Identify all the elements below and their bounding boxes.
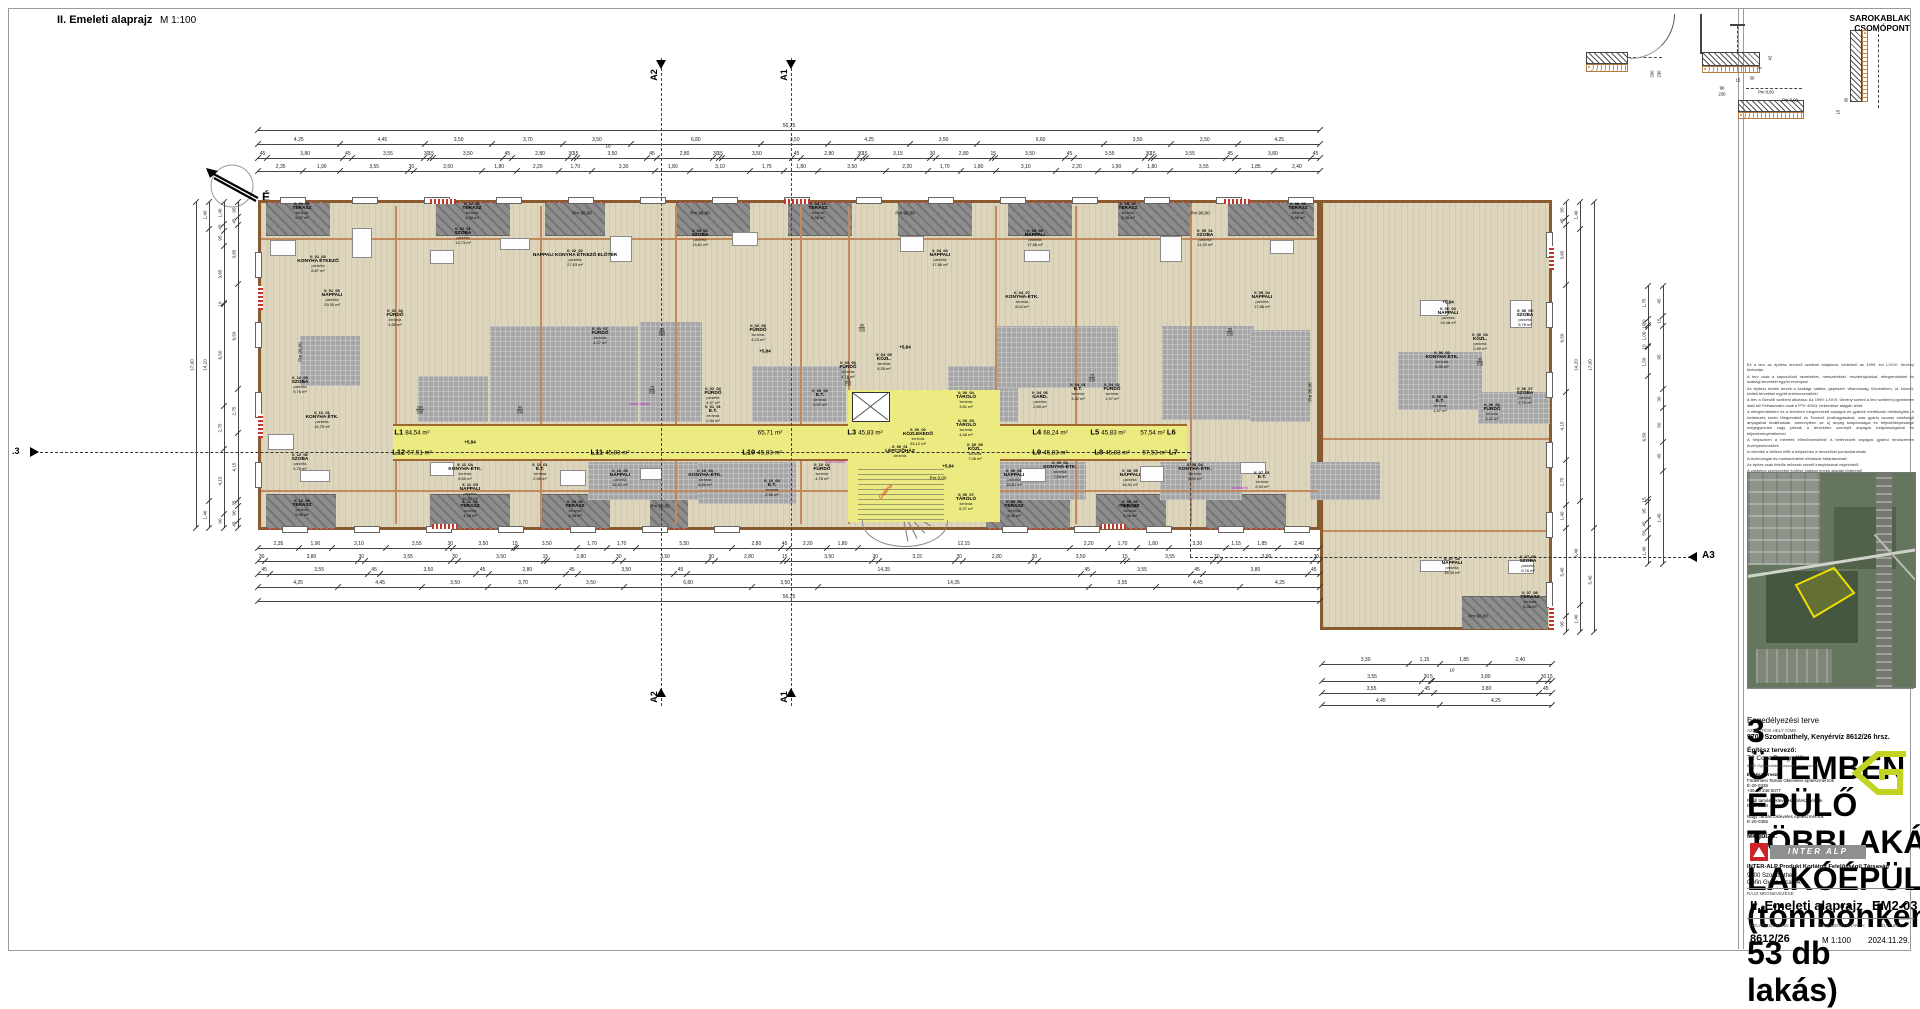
- room-label: II_12_06SZOBAparketta9,76 m²: [292, 453, 309, 471]
- dim-line: [1594, 202, 1595, 632]
- dim-line: [1580, 202, 1581, 632]
- dim-value: 1,80: [668, 164, 678, 170]
- dim-value: 1,40: [1560, 512, 1565, 521]
- dim-value: 1,70: [940, 164, 950, 170]
- dim-value: 4,45: [377, 137, 387, 143]
- dim-value: 3,65: [218, 270, 223, 279]
- dim-value: 2,40: [1292, 164, 1302, 170]
- dim-value: 30: [956, 554, 962, 560]
- door-dimension: 75210: [845, 377, 851, 386]
- door-dimension: 90210: [859, 323, 865, 332]
- dim-value: 17,00: [1588, 359, 1593, 371]
- dim-value: 1,70: [570, 164, 580, 170]
- note-line: A rétegrendekben és a terveken megneveze…: [1747, 409, 1914, 436]
- dim-value: 2,20: [1072, 164, 1082, 170]
- level-mark: Pm 90,00: [690, 211, 709, 216]
- room-label: II_11_04KONYHA-ÉTK.kerámia5,50 m²: [448, 463, 481, 481]
- dim-value: 3,50: [443, 164, 453, 170]
- furniture: [1140, 466, 1164, 482]
- apartment-unit-label: L5 45,83 m²: [1090, 428, 1125, 437]
- dim-value: 1,85: [1257, 541, 1267, 547]
- party-wall: [800, 206, 802, 524]
- stair-treads: [858, 466, 944, 520]
- dim-value: 3,55: [1199, 164, 1209, 170]
- client-street: Géfin Gyula utca 24.: [1747, 880, 1914, 886]
- dim-value: 45: [1313, 151, 1319, 157]
- furniture: [300, 470, 330, 482]
- dim-value: 1,40: [1574, 211, 1579, 220]
- dim-value: 2,35: [274, 541, 284, 547]
- room-label: II_02_01SZOBAparketta13,73 m²: [455, 227, 472, 245]
- dim-line: [258, 144, 1320, 145]
- page-title: II. Emeleti alaprajz: [57, 14, 152, 26]
- detail-dim: 30: [1844, 98, 1849, 103]
- dim-value: 3,50: [621, 567, 631, 573]
- dim-value: 30: [708, 554, 714, 560]
- dim-value: 3,80: [1262, 554, 1272, 560]
- dim-value: 14,20: [1574, 359, 1579, 371]
- detail-dim: 3: [1758, 67, 1763, 69]
- dim-value: 3,50: [660, 554, 670, 560]
- section-line-a1: [791, 58, 792, 706]
- dim-value: 3,50: [542, 541, 552, 547]
- room-label: II_00_07TÁROLÓkerámia6,37 m²: [956, 493, 976, 511]
- dim-value: 5,40: [1588, 576, 1593, 585]
- dim-value: 45: [794, 151, 800, 157]
- window: [1218, 526, 1244, 533]
- dim-value: 3,50: [824, 554, 834, 560]
- furniture: [1024, 250, 1050, 262]
- room-label: II_03_05FÜRDŐkerámia4,78 m²: [839, 361, 856, 379]
- dim-line: [1322, 681, 1552, 682]
- site-label: AZ ÉPÍTÉSI HELY CÍME:: [1747, 728, 1914, 733]
- apartment-unit-label: 65,71 m²: [758, 428, 782, 437]
- dim-value: 3,55: [369, 164, 379, 170]
- level-mark: Pm 90,00: [650, 504, 669, 509]
- dim-value: 3,50: [1076, 554, 1086, 560]
- room-label: II_02_02NAPPALI KONYHA ÉTKEZŐ ELŐTÉRpark…: [533, 249, 617, 267]
- note-line: A méretek a kitűzés előtt a helyszínen a…: [1747, 449, 1914, 454]
- dim-value: 3,55: [1185, 151, 1195, 157]
- section-label-a1-top: A1: [779, 69, 789, 81]
- dim-value: 2,40: [1294, 541, 1304, 547]
- door-dimension: 90210: [1477, 357, 1483, 366]
- dim-value: 30: [1214, 554, 1220, 560]
- window: [354, 526, 380, 533]
- apartment-unit-label: L4 68,24 m²: [1032, 428, 1067, 437]
- dim-value: 3,80: [1251, 567, 1261, 573]
- dim-value: 3,80: [1481, 674, 1491, 680]
- dim-value: 3,10: [715, 164, 725, 170]
- dim-value: 3,80: [300, 151, 310, 157]
- dim-value: 3,15: [893, 151, 903, 157]
- dim-value: 3,50: [752, 151, 762, 157]
- furniture: [1270, 240, 1294, 254]
- level-mark: Pm 90,00: [895, 211, 914, 216]
- dim-value: 4,25: [294, 137, 304, 143]
- interior-wall: [261, 490, 1317, 492]
- furniture: [270, 240, 296, 256]
- dim-value: 45: [1642, 521, 1647, 526]
- room-label: II_10_03E.T.kerámia2,56 m²: [764, 479, 780, 497]
- dim-value: 45: [1424, 686, 1430, 692]
- elevator: [852, 392, 890, 422]
- window: [1144, 197, 1170, 204]
- room-label: II_02_05FÜRDŐkerámia4,23 m²: [749, 324, 766, 342]
- dim-value: 3,55: [1367, 686, 1377, 692]
- dim-value: 1,75: [1642, 298, 1647, 307]
- dim-value: 45: [345, 151, 351, 157]
- dim-value: 4,15: [232, 462, 237, 471]
- client-label: Megbízó:: [1747, 833, 1914, 840]
- brick-mark: [1549, 246, 1554, 270]
- dim-value: 30: [1541, 674, 1547, 680]
- dim-value: 1,90: [1112, 164, 1122, 170]
- room-label: II_05_06TERASZkerámia4,38 m²: [1118, 202, 1137, 220]
- dim-extra: 10: [605, 144, 610, 149]
- door-dimension: 90210: [1227, 327, 1233, 336]
- dim-value: 3,55: [1118, 580, 1128, 586]
- dim-value: 3,50: [1200, 137, 1210, 143]
- interior-wall: [1323, 438, 1549, 440]
- brick-mark: [432, 524, 458, 529]
- furniture: [500, 238, 530, 250]
- dim-value: 14,35: [947, 580, 960, 586]
- furniture: [268, 434, 294, 450]
- dim-line: [1663, 286, 1664, 564]
- dim-value: 1,90: [317, 164, 327, 170]
- dim-value: 1,40: [203, 510, 208, 519]
- window: [714, 526, 740, 533]
- dim-value: 5,40: [1560, 568, 1565, 577]
- dim-value: 30: [1657, 396, 1662, 401]
- furniture: [732, 232, 758, 246]
- dim-value: 15: [1657, 318, 1662, 323]
- window: [1546, 582, 1553, 608]
- dim-value: 2,80: [744, 554, 754, 560]
- elevation-mark: +5,84: [759, 349, 770, 354]
- room-label: II_04_07KONYHA-ÉTK.kerámia8,04 m²: [1005, 291, 1038, 309]
- client-city: 9700 Szombathely,: [1747, 873, 1914, 879]
- room-label: II_01_07FÜRDŐkerámia4,27 m²: [591, 327, 608, 345]
- dim-value: 3,10: [354, 541, 364, 547]
- elevation-mark: +5,84: [1442, 300, 1453, 305]
- dim-value: 56,25: [783, 123, 796, 129]
- architect-logo: [1848, 748, 1910, 798]
- architect4-reg: É-20-0355: [1747, 819, 1914, 824]
- dim-line: [258, 130, 1320, 131]
- dim-value: 3,15: [912, 554, 922, 560]
- project-subtitle: Engedélyezési terve: [1747, 716, 1914, 725]
- dim-value: 3,55: [412, 541, 422, 547]
- dim-value: 4,25: [1274, 137, 1284, 143]
- scale-value: M 1:100: [1822, 936, 1851, 945]
- dim-value: 2,20: [803, 541, 813, 547]
- dim-value: 3,50: [939, 137, 949, 143]
- level-mark: Pm 0,00: [930, 476, 947, 481]
- dim-value: 50: [1657, 422, 1662, 427]
- window: [1146, 526, 1172, 533]
- brick-mark: [430, 199, 456, 204]
- door-dimension: 75210: [649, 385, 655, 394]
- dim-value: 1,40: [203, 211, 208, 220]
- window: [1546, 442, 1553, 468]
- dim-value: 30: [1424, 674, 1430, 680]
- brick-mark: [258, 286, 263, 310]
- dim-line: [258, 587, 1320, 588]
- tiled-area: [418, 376, 488, 422]
- dim-value: 4,45: [1193, 580, 1203, 586]
- window: [282, 526, 308, 533]
- dim-value: 4,25: [1275, 580, 1285, 586]
- dim-value: 30: [1032, 554, 1038, 560]
- dim-value: 1,85: [1459, 657, 1469, 663]
- titleblock-divider: [1738, 8, 1744, 949]
- detail-dim: 230: [1657, 71, 1662, 78]
- dim-value: 45: [1194, 567, 1200, 573]
- window: [570, 526, 596, 533]
- dim-line: [209, 202, 210, 528]
- dim-value: 1,15: [1231, 541, 1241, 547]
- interalp-logo-text: INTER ALP: [1770, 845, 1866, 859]
- drawing-number: EM2-03: [1872, 898, 1918, 913]
- dim-value: 1,70: [587, 541, 597, 547]
- room-label: II_08_05NAPPALIparketta16,91 m²: [1120, 469, 1141, 487]
- room-label: II_00_03TÁROLÓkerámia4,46 m²: [956, 419, 976, 437]
- window: [352, 197, 378, 204]
- room-label: II_08_04KONYHA-ÉTK.kerámia5,50 m²: [1178, 463, 1211, 481]
- room-label: II_04_06GARD.parketta2,89 m²: [1032, 391, 1048, 409]
- material-note: mosó szárító: [825, 460, 845, 464]
- room-label: II_06_05SZOBAparketta9,76 m²: [1517, 309, 1534, 327]
- dim-value: 4,15: [1560, 421, 1565, 430]
- dim-value: 95: [1560, 622, 1565, 627]
- interalp-logo-mark: [1750, 843, 1768, 861]
- site-boundary-polygon: [1792, 565, 1858, 621]
- room-label: II_05_01SZOBAparketta11,20 m²: [1197, 229, 1214, 247]
- dim-line: [224, 202, 225, 528]
- interior-wall: [261, 238, 1317, 240]
- room-label: II_09_04KONYHA-ÉTK.kerámia7,20 m²: [1043, 461, 1076, 479]
- dim-value: 45: [261, 567, 267, 573]
- dim-value: 30: [872, 554, 878, 560]
- window: [1000, 197, 1026, 204]
- dim-value: 3,10: [1021, 164, 1031, 170]
- dim-value: 2,80: [992, 554, 1002, 560]
- dim-value: 45: [649, 151, 655, 157]
- room-label: II_07_01E.T.kerámia2,94 m²: [1254, 471, 1270, 489]
- apartment-unit-label: L8 45,83 m²: [1094, 448, 1129, 457]
- page-scale: M 1:100: [160, 15, 196, 26]
- room-label: II_00_05KÖZL.kerámia7,06 m²: [967, 443, 983, 461]
- dim-value: 1,85: [1251, 164, 1261, 170]
- room-label: II_09_06TERASZkerámia5,36 m²: [1004, 500, 1023, 518]
- dim-value: 45: [782, 541, 788, 547]
- dim-value: 45: [232, 218, 237, 223]
- section-label-a3-right: A3: [1702, 550, 1715, 561]
- dim-value: 3,50: [496, 554, 506, 560]
- dim-value: 1,00: [1642, 332, 1647, 341]
- room-label: II_04_02FÜRDŐkerámia1,97 m²: [1103, 383, 1120, 401]
- room-label: II_11_06TERASZkerámia4,38 m²: [460, 500, 479, 518]
- dim-value: 1,80: [1148, 541, 1158, 547]
- dim-value: 3,30: [619, 164, 629, 170]
- apartment-unit-label: L9 45,83 m²: [1032, 448, 1067, 457]
- dim-value: 17,00: [190, 359, 195, 371]
- detail-dim: Pm 0,00: [1782, 98, 1798, 103]
- dim-value: 2,80: [680, 151, 690, 157]
- dim-value: 45: [569, 567, 575, 573]
- dim-value: 3,50: [423, 567, 433, 573]
- elevation-mark: +5,84: [899, 345, 910, 350]
- dim-value: 45: [1560, 219, 1565, 224]
- section-label-a3-left: .3: [12, 446, 20, 456]
- dim-value: 3,50: [586, 580, 596, 586]
- dim-value: 1,15: [1420, 657, 1430, 663]
- dim-value: 6,50: [232, 332, 237, 341]
- dim-value: 2,80: [535, 151, 545, 157]
- room-label: II_09_05NAPPALIparketta18,81 m²: [1004, 469, 1025, 487]
- dim-value: 30: [447, 541, 453, 547]
- room-label: II_06_06FÜRDŐkerámia3,42 m²: [1483, 403, 1500, 421]
- tiled-area: [752, 366, 846, 422]
- dim-value: 4,45: [375, 580, 385, 586]
- apartment-unit-label: L11 45,83 m²: [590, 448, 629, 457]
- tiled-area: [640, 322, 702, 422]
- room-label: II_10_04KONYHA-ÉTK.kerámia5,50 m²: [688, 469, 721, 487]
- dim-value: 6,50: [1560, 334, 1565, 343]
- dim-value: 45: [260, 151, 266, 157]
- dim-value: 30: [1314, 554, 1320, 560]
- room-label: II_04_09KÖZL.kerámia5,35 m²: [876, 353, 892, 371]
- dim-value: 6,80: [683, 580, 693, 586]
- level-mark: Pm 90,00: [572, 211, 591, 216]
- dim-line: [258, 574, 1320, 575]
- dim-value: 2,80: [522, 567, 532, 573]
- detail-dim: 30: [1750, 76, 1755, 81]
- window: [498, 526, 524, 533]
- dim-value: 3,80: [307, 554, 317, 560]
- tiled-area: [300, 336, 360, 386]
- furniture: [900, 236, 924, 252]
- room-label: II_07_05SZOBAparketta9,76 m²: [1520, 555, 1537, 573]
- dim-value: 3,55: [1165, 554, 1175, 560]
- dim-value: 1,90: [311, 541, 321, 547]
- room-label: II_02_04FÜRDŐparketta4,47 m²: [704, 387, 721, 405]
- brick-mark: [1224, 199, 1250, 204]
- dim-value: 30: [259, 554, 265, 560]
- dim-value: 3,55: [1137, 567, 1147, 573]
- room-label: II_07_08TERASZkerámia5,36 m²: [1520, 591, 1539, 609]
- furniture: [640, 468, 662, 480]
- dim-value: 3,55: [403, 554, 413, 560]
- dim-value: 4,25: [293, 580, 303, 586]
- window: [712, 197, 738, 204]
- window: [1074, 526, 1100, 533]
- window: [1284, 526, 1310, 533]
- dim-value: 12,15: [958, 541, 971, 547]
- date-label: DÁTUM:: [1882, 923, 1899, 928]
- dim-value: 3,70: [523, 137, 533, 143]
- dim-value: 35: [232, 501, 237, 506]
- dim-value: 2,80: [824, 151, 834, 157]
- apartment-unit-label: L12 57,51 m²: [392, 448, 431, 457]
- room-label: II_05_05NAPPALIparketta17,86 m²: [1025, 229, 1046, 247]
- dim-value: 3,50: [463, 151, 473, 157]
- dim-value: 45: [505, 151, 511, 157]
- dim-value: 2,75: [1560, 478, 1565, 487]
- dim-value: 30: [616, 554, 622, 560]
- brick-mark: [1549, 606, 1554, 630]
- dim-value: 3,50: [790, 137, 800, 143]
- dim-value: 95: [232, 207, 237, 212]
- room-label: II_01_04FÜRDŐkerámia4,65 m²: [386, 309, 403, 327]
- room-label: II_06_07SZOBAparketta9,76 m²: [1517, 387, 1534, 405]
- dim-value: 45: [1084, 567, 1090, 573]
- dim-value: 6,60: [1036, 137, 1046, 143]
- dim-value: 3,50: [1025, 151, 1035, 157]
- dim-value: 45: [232, 522, 237, 527]
- scale-label: RAJZ MÉRETARÁNYA:: [1818, 923, 1865, 928]
- corridor: [393, 424, 1187, 461]
- elevation-mark: +5,84: [464, 440, 475, 445]
- dim-value: 1,80: [838, 541, 848, 547]
- room-label: II_00_04TÁROLÓkerámia3,81 m²: [956, 391, 976, 409]
- interior-wall: [1323, 530, 1549, 532]
- party-wall: [395, 206, 397, 524]
- dim-value: 1,80: [796, 164, 806, 170]
- dim-value: 1,80: [974, 164, 984, 170]
- dim-line: [1566, 202, 1567, 632]
- door-dimension: 200230: [416, 405, 424, 414]
- window: [255, 462, 262, 488]
- dim-value: 45: [371, 567, 377, 573]
- dim-value: 45: [1227, 151, 1233, 157]
- room-label: II_03_03E.T.kerámia2,97 m²: [812, 389, 828, 407]
- window: [255, 252, 262, 278]
- furniture: [1160, 236, 1182, 262]
- room-label: II_02_06TERASZkerámia4,38 m²: [462, 202, 481, 220]
- tiled-area: [1162, 326, 1254, 420]
- window: [928, 197, 954, 204]
- detail-dim: 90: [1720, 86, 1725, 91]
- dim-value: 56,25: [783, 594, 796, 600]
- dim-value: 2,75: [232, 407, 237, 416]
- dim-value: 3,55: [1105, 151, 1115, 157]
- dim-value: 30: [930, 151, 936, 157]
- window: [1546, 372, 1553, 398]
- lot-label: HELYRAJZI SZÁM:: [1750, 923, 1789, 928]
- dim-value: 45: [1657, 454, 1662, 459]
- detail-dim: 15: [1736, 78, 1741, 83]
- dim-value: 3,50: [454, 137, 464, 143]
- dim-value: 45: [1657, 298, 1662, 303]
- level-mark: Pm 90,00: [1308, 382, 1313, 401]
- party-wall: [675, 206, 677, 524]
- lot-number: 8612/26: [1750, 933, 1790, 945]
- terrace-top: [898, 202, 972, 236]
- dim-value: 1,40: [1657, 513, 1662, 522]
- dim-value: 3,65: [1560, 250, 1565, 259]
- dim-value: 2,35: [276, 164, 286, 170]
- dim-value: 3,55: [1367, 674, 1377, 680]
- room-label: II_06_04KÖZL.parketta2,69 m²: [1472, 333, 1488, 351]
- dim-line: [258, 561, 1320, 562]
- dim-value: 1,40: [218, 208, 223, 217]
- site-map-image: [1747, 472, 1916, 688]
- note-line: Az építész kiviteli tervek a szakági: st…: [1747, 386, 1914, 397]
- dim-value: 95: [1642, 508, 1647, 513]
